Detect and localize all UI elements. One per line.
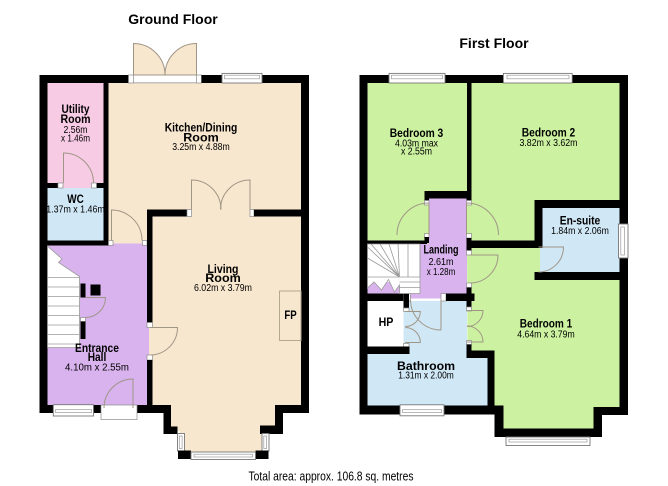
svg-text:6.02m x 3.79m: 6.02m x 3.79m	[194, 283, 252, 294]
svg-text:First Floor: First Floor	[459, 35, 529, 51]
svg-text:x 1.46m: x 1.46m	[61, 134, 90, 145]
svg-text:Total area: approx. 106.8 sq.: Total area: approx. 106.8 sq. metres	[249, 470, 414, 484]
svg-text:4.64m x 3.79m: 4.64m x 3.79m	[517, 329, 574, 340]
svg-text:1.31m x 2.00m: 1.31m x 2.00m	[398, 371, 454, 382]
svg-text:4.10m x 2.55m: 4.10m x 2.55m	[65, 363, 129, 374]
svg-text:FP: FP	[284, 310, 297, 322]
svg-text:x 1.28m: x 1.28m	[427, 267, 456, 278]
svg-text:1.84m x 2.06m: 1.84m x 2.06m	[551, 226, 609, 237]
svg-text:3.25m x 4.88m: 3.25m x 4.88m	[172, 142, 230, 153]
svg-text:Ground Floor: Ground Floor	[128, 11, 218, 27]
svg-text:1.37m x 1.46m: 1.37m x 1.46m	[46, 205, 105, 216]
svg-text:Landing: Landing	[424, 245, 459, 257]
svg-text:x 2.55m: x 2.55m	[401, 147, 432, 158]
svg-text:HP: HP	[379, 317, 394, 329]
svg-text:3.82m x 3.62m: 3.82m x 3.62m	[520, 138, 578, 149]
